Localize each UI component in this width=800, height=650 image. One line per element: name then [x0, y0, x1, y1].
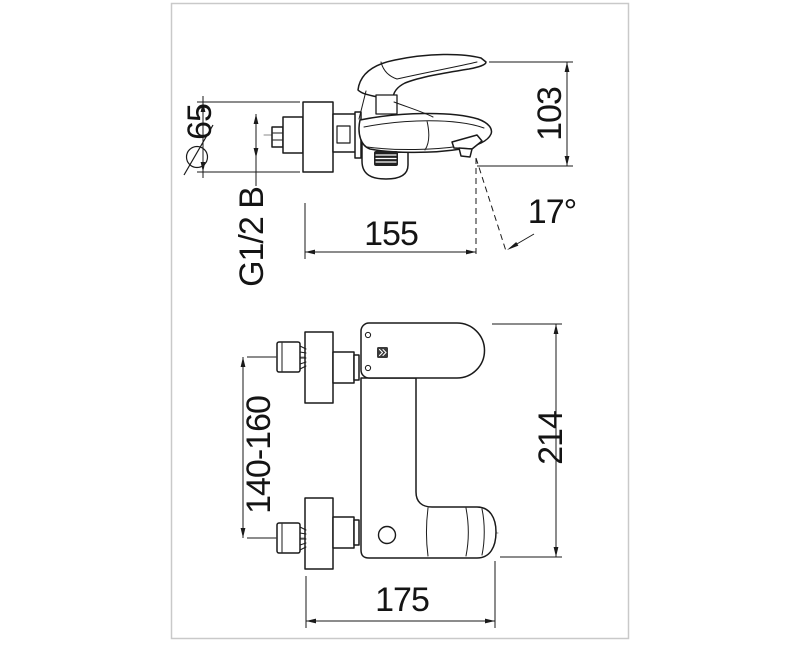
front-view — [270, 323, 498, 569]
dim-label-body-height: 103 — [533, 87, 567, 141]
brand-logo-mark — [377, 347, 388, 358]
dim-label-connection-spacing: 140-160 — [242, 396, 276, 514]
dim-label-plate-diameter: 65 — [183, 104, 217, 140]
diverter-knob — [374, 151, 398, 166]
dim-label-overall-height: 214 — [534, 411, 568, 465]
dim-label-connection-thread: G1/2 B — [235, 187, 269, 287]
dim-label-overall-reach: 175 — [375, 583, 429, 617]
dim-label-spout-reach: 155 — [364, 217, 418, 251]
spout-angle-construction — [476, 158, 506, 258]
bottom-wall-connection — [277, 498, 359, 569]
spout-outlet-tab — [459, 148, 472, 157]
cartridge-block — [376, 95, 397, 114]
top-wall-connection — [277, 332, 359, 403]
drawing-canvas — [0, 0, 800, 650]
thread-nipple — [283, 117, 303, 153]
drawing-page: 65 G1/2 B 155 103 17° 140-160 214 175 — [0, 0, 800, 650]
diverter-hole — [379, 527, 396, 544]
wall-plate — [303, 102, 333, 172]
dim-label-spout-angle: 17° — [528, 195, 576, 229]
thread-nipple-shank — [272, 127, 283, 147]
side-view — [264, 54, 491, 179]
